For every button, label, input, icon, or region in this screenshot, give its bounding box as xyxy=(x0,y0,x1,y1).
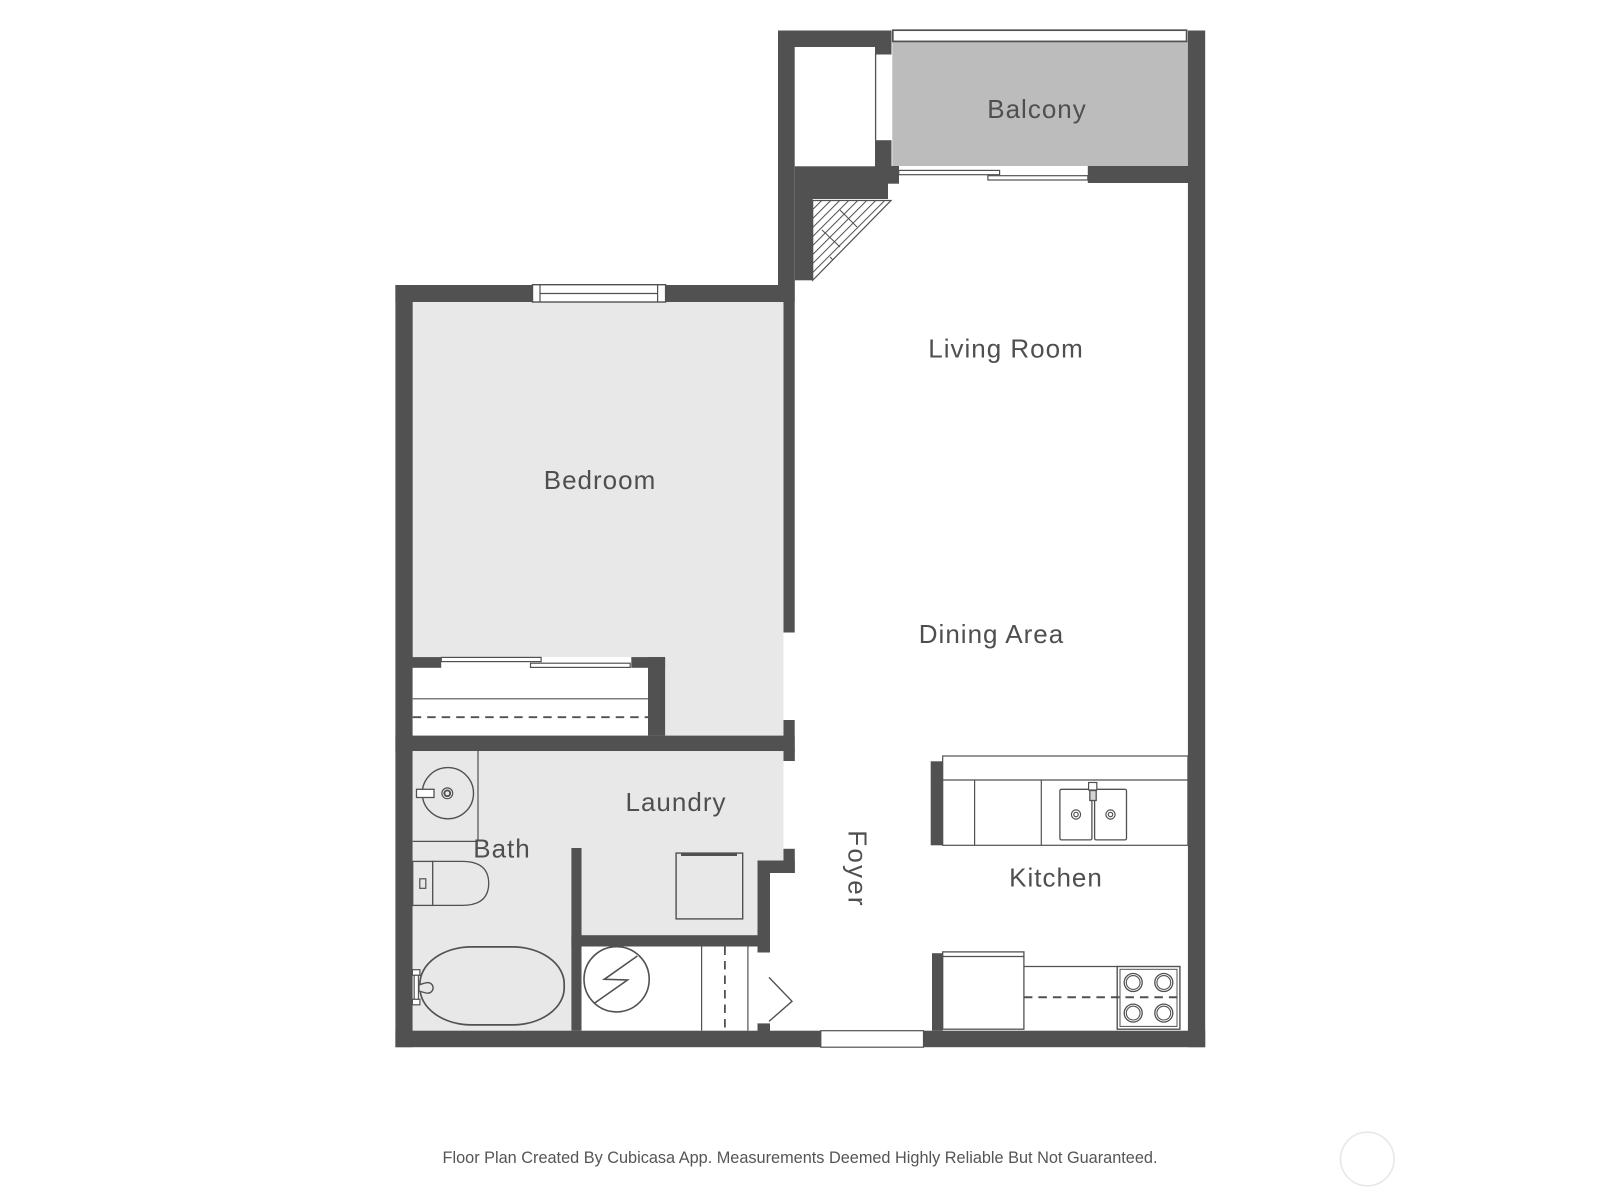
svg-text:Balcony: Balcony xyxy=(987,94,1087,124)
svg-text:Bath: Bath xyxy=(473,834,531,864)
svg-text:Laundry: Laundry xyxy=(626,787,727,817)
svg-text:Dining Area: Dining Area xyxy=(919,619,1064,649)
svg-text:Kitchen: Kitchen xyxy=(1009,863,1103,893)
svg-text:Foyer: Foyer xyxy=(843,830,873,907)
svg-text:Floor Plan Created By Cubicasa: Floor Plan Created By Cubicasa App. Meas… xyxy=(443,1149,1158,1167)
svg-text:Living Room: Living Room xyxy=(928,334,1084,364)
svg-text:Bedroom: Bedroom xyxy=(544,465,657,495)
